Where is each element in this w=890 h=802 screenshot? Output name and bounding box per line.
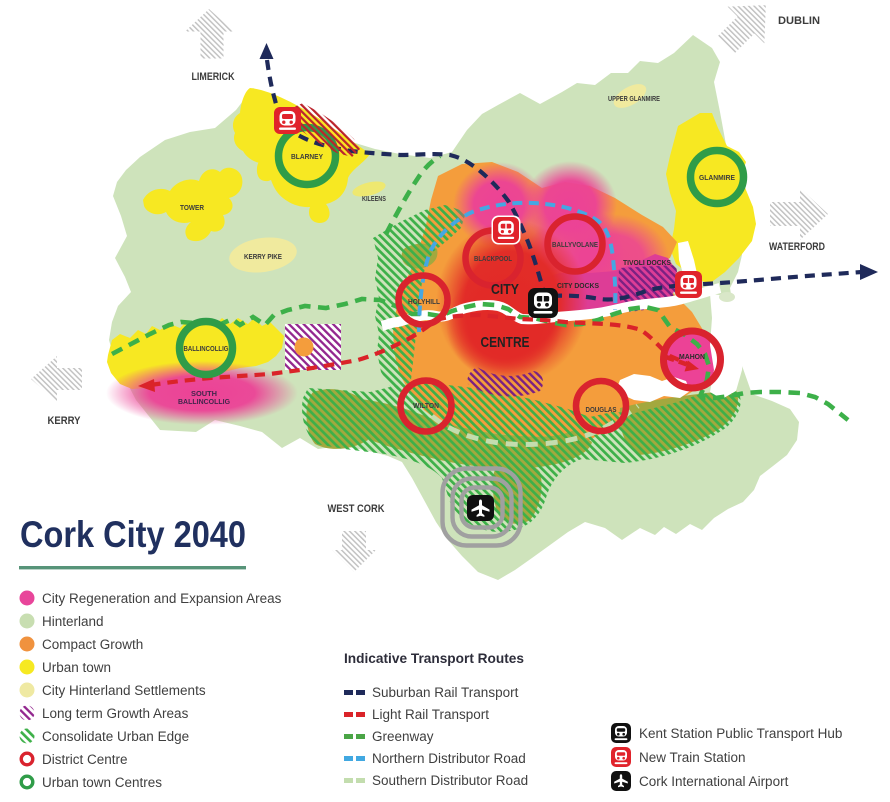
svg-text:CITY DOCKS: CITY DOCKS <box>557 281 599 290</box>
svg-text:TIVOLI DOCKS: TIVOLI DOCKS <box>623 258 671 267</box>
svg-text:Northern Distributor Road: Northern Distributor Road <box>372 751 526 766</box>
svg-text:BALLINCOLLIG: BALLINCOLLIG <box>178 397 230 406</box>
svg-text:BALLINCOLLIG: BALLINCOLLIG <box>184 344 229 353</box>
svg-text:Kent Station Public Transport: Kent Station Public Transport Hub <box>639 726 842 741</box>
svg-text:Urban town: Urban town <box>42 660 111 675</box>
svg-text:TOWER: TOWER <box>180 203 205 212</box>
svg-text:City Hinterland Settlements: City Hinterland Settlements <box>42 683 206 698</box>
svg-text:WEST CORK: WEST CORK <box>328 503 385 515</box>
svg-text:GLANMIRE: GLANMIRE <box>699 173 735 182</box>
svg-text:DOUGLAS: DOUGLAS <box>586 405 617 414</box>
svg-text:CITY: CITY <box>491 281 519 298</box>
svg-text:WATERFORD: WATERFORD <box>769 241 825 253</box>
svg-text:KERRY: KERRY <box>48 415 82 427</box>
svg-text:Consolidate Urban Edge: Consolidate Urban Edge <box>42 729 189 744</box>
svg-text:BLACKPOOL: BLACKPOOL <box>474 254 512 263</box>
svg-text:KILEENS: KILEENS <box>362 194 386 203</box>
svg-text:District Centre: District Centre <box>42 752 128 767</box>
svg-text:City Regeneration and Expansio: City Regeneration and Expansion Areas <box>42 591 282 606</box>
svg-text:Southern Distributor Road: Southern Distributor Road <box>372 773 528 788</box>
svg-text:WILTON: WILTON <box>413 401 439 410</box>
svg-text:UPPER GLANMIRE: UPPER GLANMIRE <box>608 94 660 103</box>
svg-text:Indicative Transport Routes: Indicative Transport Routes <box>344 650 524 666</box>
svg-text:Suburban Rail Transport: Suburban Rail Transport <box>372 685 519 700</box>
svg-text:CENTRE: CENTRE <box>481 334 530 351</box>
svg-text:Cork International Airport: Cork International Airport <box>639 774 789 789</box>
svg-text:Cork City 2040: Cork City 2040 <box>20 514 246 555</box>
svg-text:Hinterland: Hinterland <box>42 614 104 629</box>
svg-text:BALLYVOLANE: BALLYVOLANE <box>552 240 598 249</box>
svg-text:Long term Growth Areas: Long term Growth Areas <box>42 706 189 721</box>
svg-text:Greenway: Greenway <box>372 729 434 744</box>
svg-text:MAHON: MAHON <box>679 352 705 361</box>
svg-text:DUBLIN: DUBLIN <box>778 15 820 27</box>
svg-text:LIMERICK: LIMERICK <box>192 71 235 83</box>
svg-text:Urban town Centres: Urban town Centres <box>42 775 162 790</box>
svg-text:New Train Station: New Train Station <box>639 750 746 765</box>
svg-text:Compact Growth: Compact Growth <box>42 637 143 652</box>
svg-text:BLARNEY: BLARNEY <box>291 152 323 161</box>
svg-text:KERRY PIKE: KERRY PIKE <box>244 252 282 261</box>
svg-text:Light Rail Transport: Light Rail Transport <box>372 707 489 722</box>
svg-text:HOLYHILL: HOLYHILL <box>408 297 440 306</box>
